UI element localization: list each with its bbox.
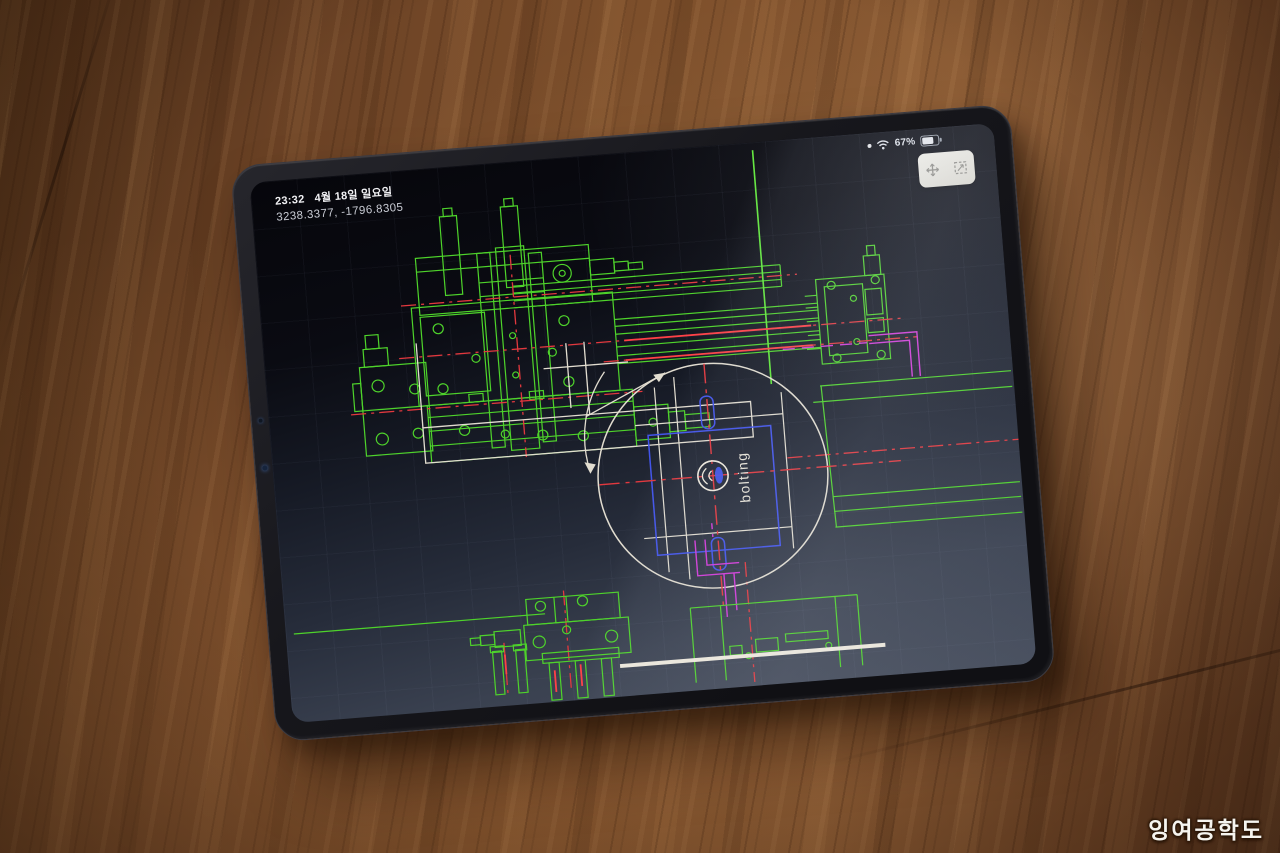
machine-side-view	[339, 184, 711, 469]
front-camera-icon	[262, 465, 267, 470]
watermark: 잉여공학도	[1148, 811, 1264, 845]
front-camera-icon	[258, 419, 262, 423]
magenta-bracket-top	[782, 332, 920, 387]
base-plate-white	[416, 317, 755, 485]
arc-arrowhead	[584, 461, 596, 474]
side-plate	[812, 371, 1022, 528]
cad-canvas[interactable]: 23:324월 18일 일요일 3238.3377, -1796.8305 67…	[249, 123, 1036, 723]
detail-circle: bolting	[589, 349, 911, 617]
cad-drawing[interactable]: bolting	[249, 123, 1036, 723]
centerlines	[339, 215, 1036, 712]
tablet-device: 23:324월 18일 일요일 3238.3377, -1796.8305 67…	[230, 104, 1056, 743]
machine-front-view	[293, 591, 635, 720]
tank-section	[690, 595, 863, 683]
annotation-bolting: bolting	[733, 451, 753, 503]
